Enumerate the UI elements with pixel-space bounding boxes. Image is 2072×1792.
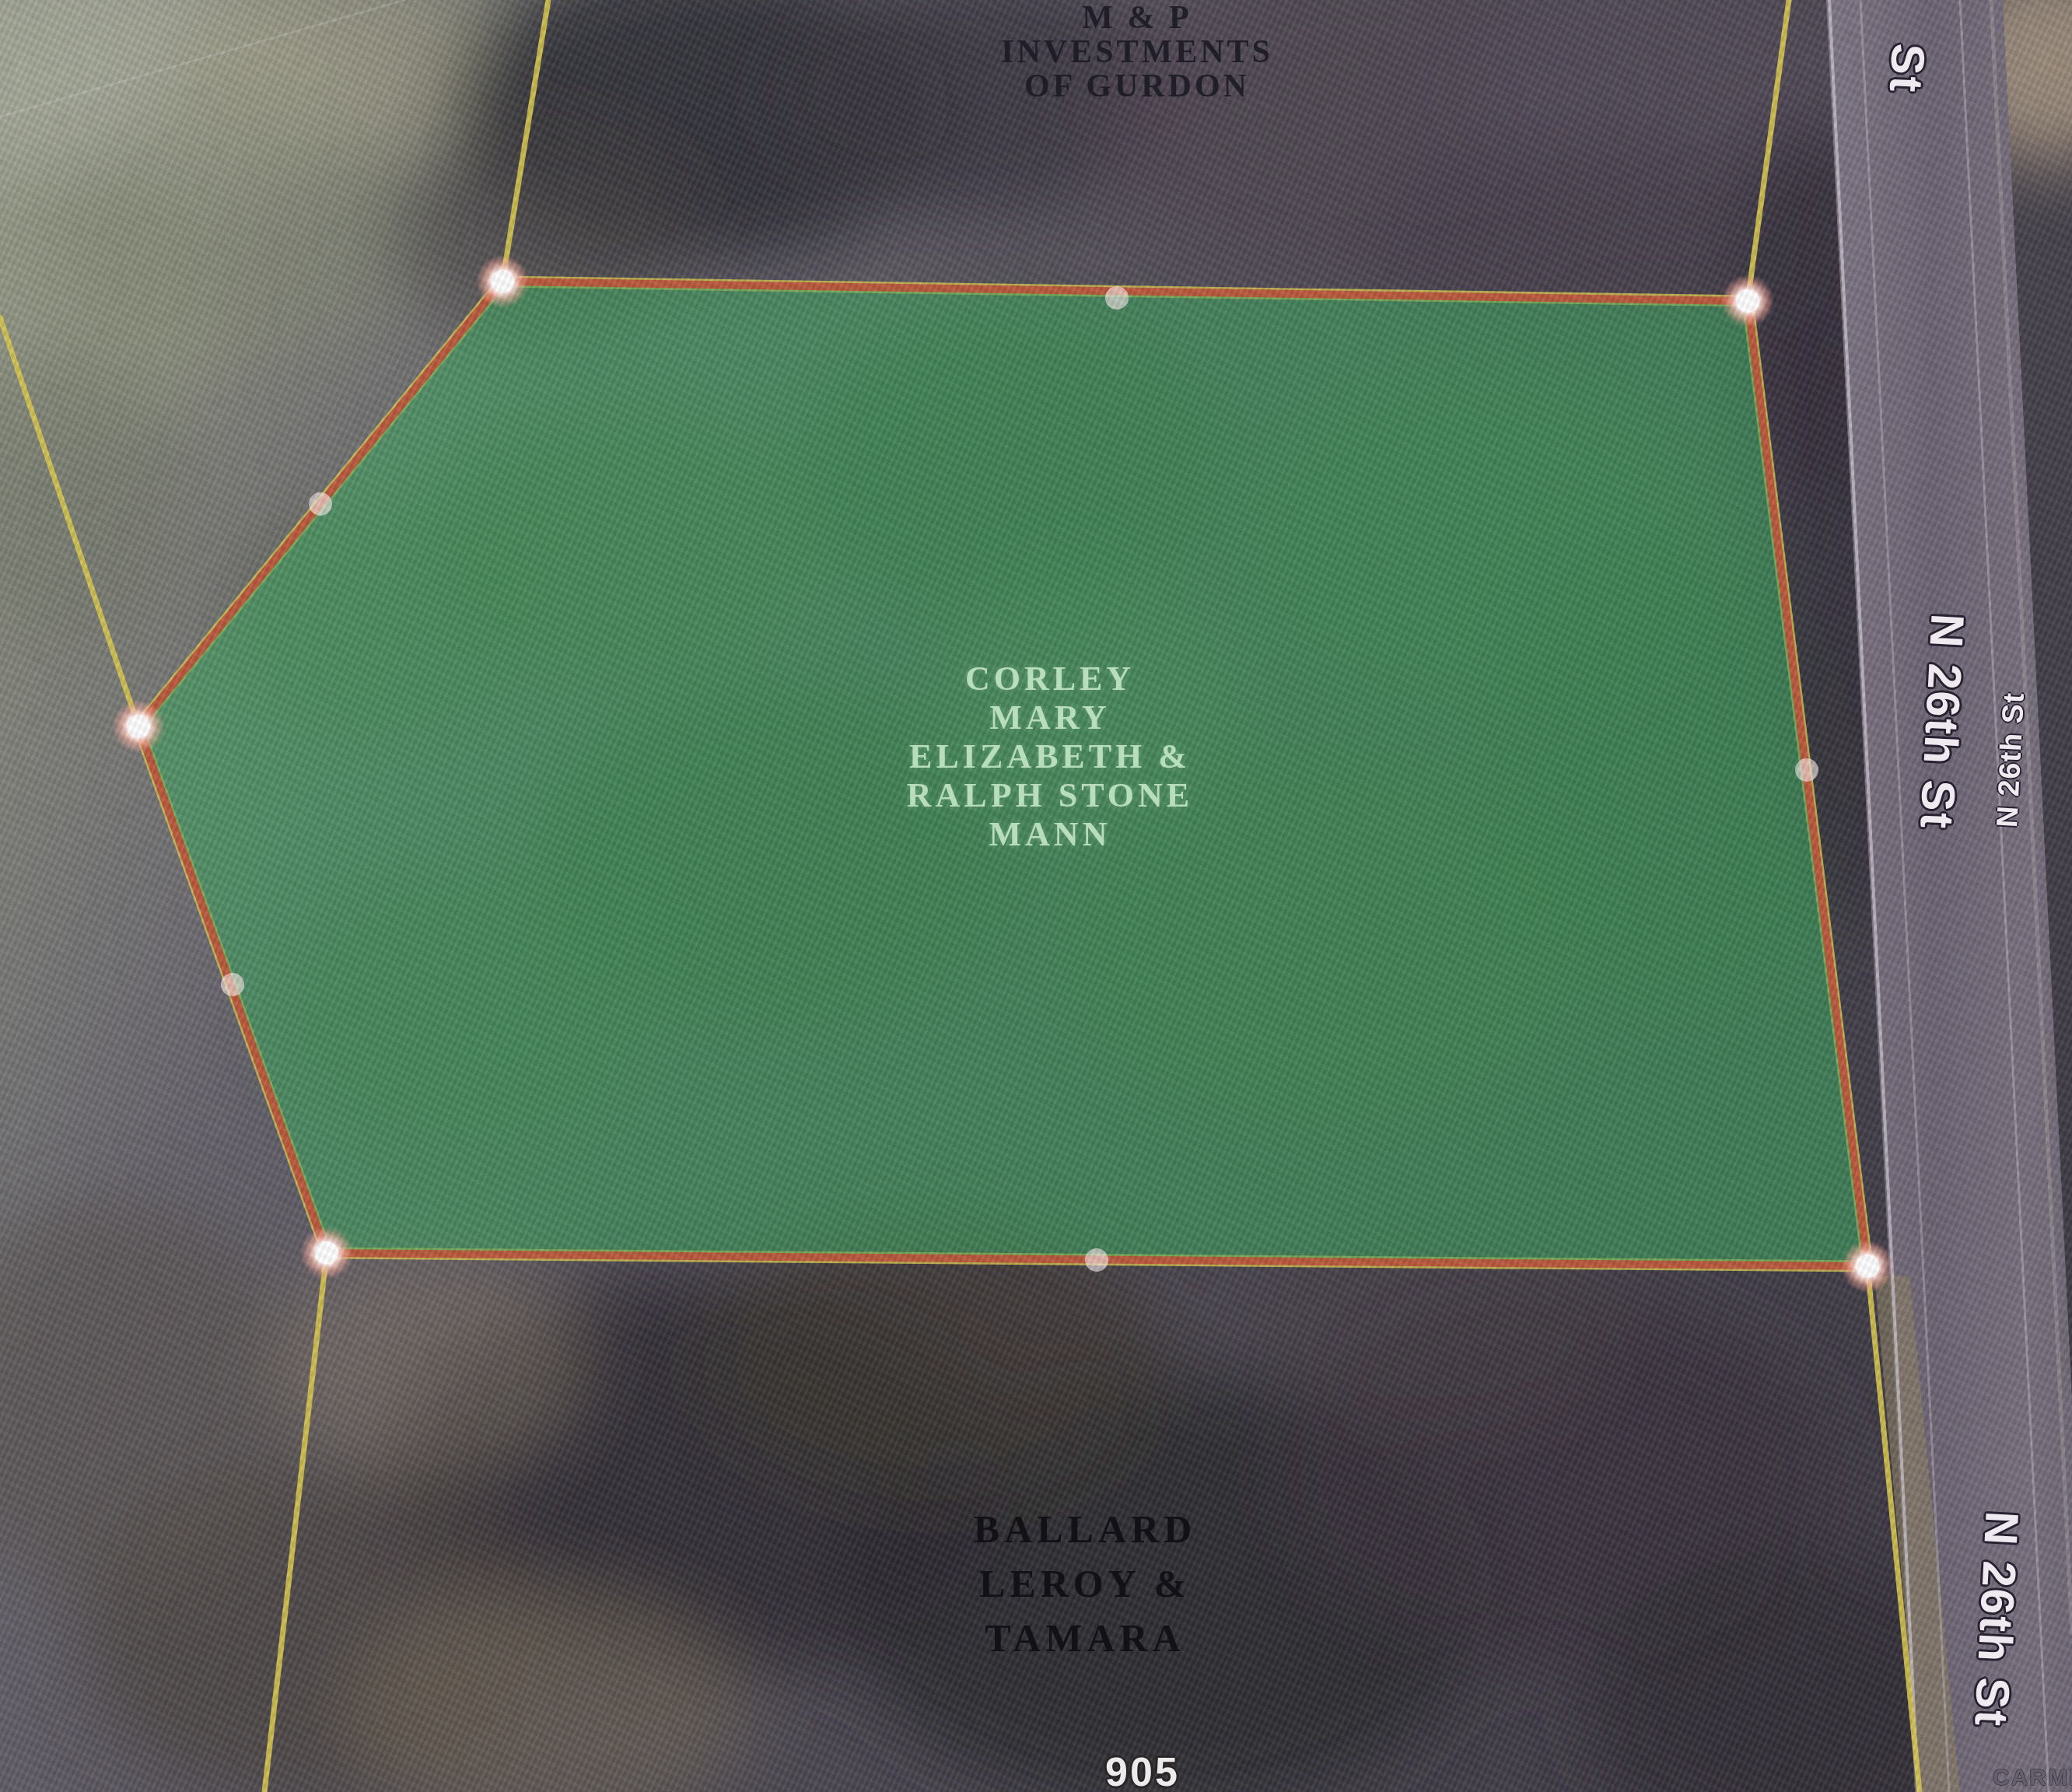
- address-number-label: 905: [1105, 1748, 1180, 1792]
- owner-label-line: MANN: [907, 815, 1193, 854]
- owner-label-line: LEROY &: [974, 1556, 1196, 1611]
- owner-label-line: OF GURDON: [1001, 68, 1273, 103]
- owner-label-selected-parcel: CORLEY MARY ELIZABETH & RALPH STONE MANN: [907, 660, 1193, 854]
- owner-label-line: INVESTMENTS: [1001, 34, 1273, 68]
- owner-label-line: M & P: [1001, 0, 1273, 34]
- map-canvas[interactable]: M & P INVESTMENTS OF GURDON CORLEY MARY …: [0, 0, 2072, 1792]
- street-label-n26th-lower: N 26th St: [1964, 1510, 2028, 1728]
- owner-label-line: CORLEY: [907, 660, 1193, 698]
- owner-label-line: MARY: [907, 698, 1193, 737]
- owner-label-line: TAMARA: [974, 1611, 1196, 1665]
- owner-label-north-parcel: M & P INVESTMENTS OF GURDON: [1001, 0, 1273, 103]
- owner-label-line: ELIZABETH &: [907, 737, 1193, 776]
- owner-label-line: BALLARD: [974, 1502, 1196, 1556]
- street-label-n26th-upper: N 26th St: [1909, 612, 1974, 831]
- watermark: CARMLS, INC: [1993, 1764, 2072, 1790]
- street-label-partial-top: St: [1879, 42, 1935, 95]
- owner-label-south-parcel: BALLARD LEROY & TAMARA: [974, 1502, 1196, 1665]
- street-label-n26th-upper-small: N 26th St: [1990, 691, 2031, 828]
- owner-label-line: RALPH STONE: [907, 776, 1193, 815]
